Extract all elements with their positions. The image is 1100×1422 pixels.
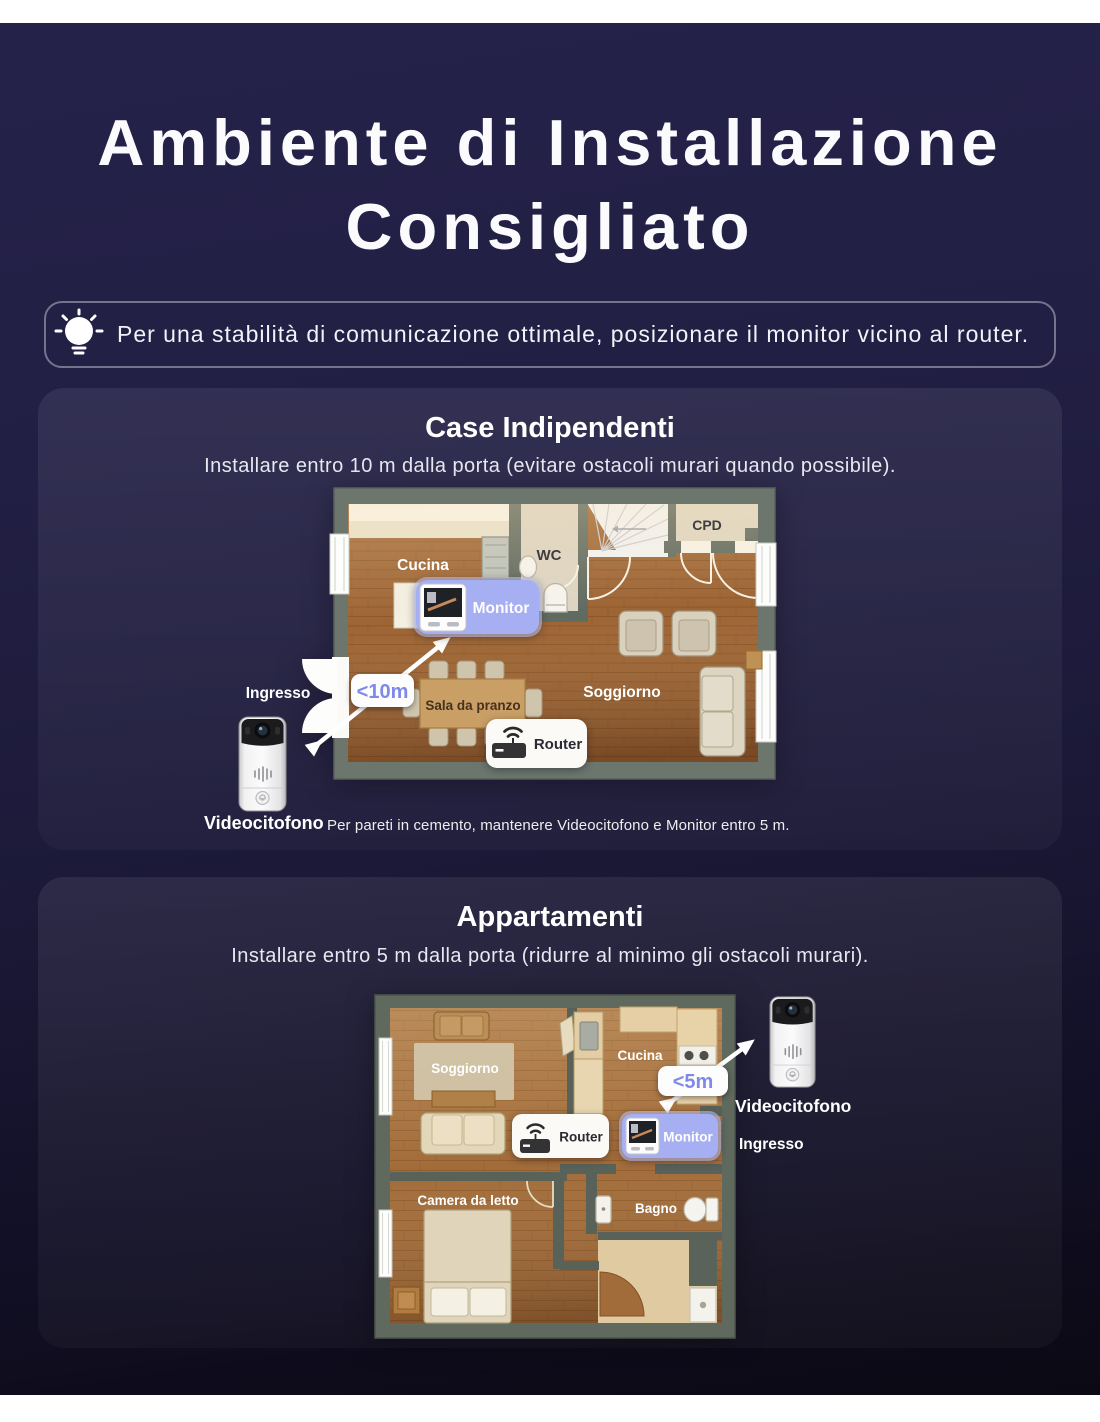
svg-text:Cucina: Cucina — [397, 557, 449, 574]
svg-text:Camera da letto: Camera da letto — [417, 1193, 518, 1208]
svg-text:<5m: <5m — [673, 1071, 714, 1093]
svg-text:Cucina: Cucina — [617, 1048, 663, 1063]
svg-text:Bagno: Bagno — [635, 1201, 677, 1216]
svg-text:WC: WC — [537, 547, 562, 564]
svg-text:Soggiorno: Soggiorno — [583, 684, 661, 701]
svg-text:Sala da pranzo: Sala da pranzo — [425, 698, 520, 713]
svg-text:CPD: CPD — [692, 517, 722, 533]
svg-text:Router: Router — [559, 1130, 603, 1145]
svg-text:Monitor: Monitor — [663, 1130, 713, 1145]
svg-text:Monitor: Monitor — [473, 600, 530, 617]
svg-text:Router: Router — [534, 736, 582, 753]
svg-text:<10m: <10m — [357, 681, 409, 703]
svg-text:Soggiorno: Soggiorno — [431, 1061, 499, 1076]
